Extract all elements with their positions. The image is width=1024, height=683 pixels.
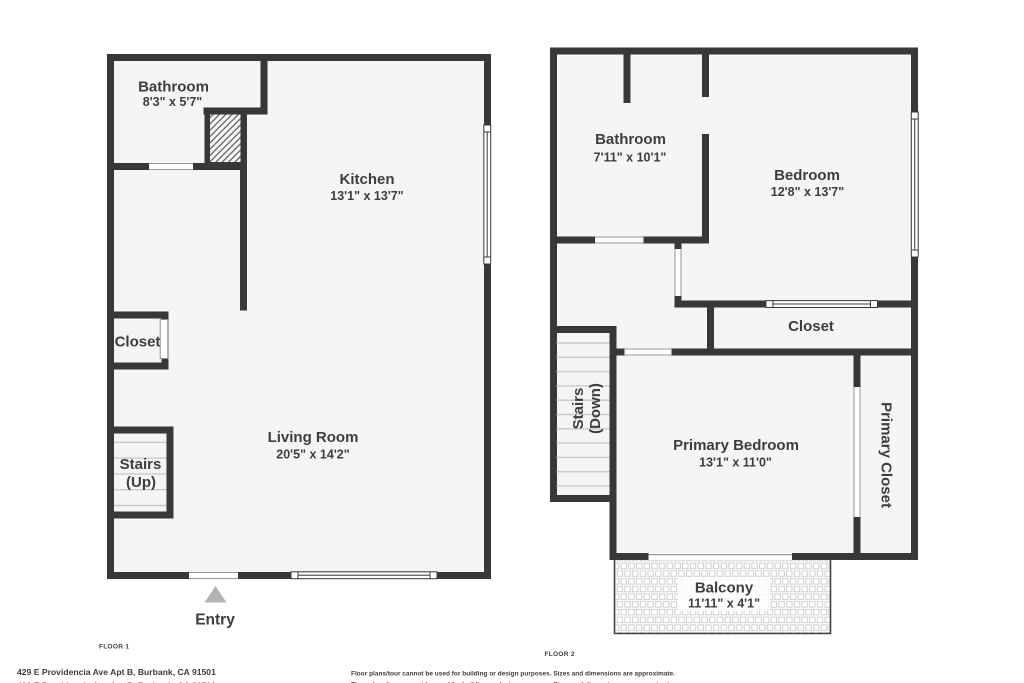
svg-text:20'5" x 14'2": 20'5" x 14'2" xyxy=(276,448,349,462)
svg-text:Entry: Entry xyxy=(195,612,235,629)
svg-text:429 E Providencia Ave Apt B, B: 429 E Providencia Ave Apt B, Burbank, CA… xyxy=(17,667,216,677)
svg-text:8'3" x 5'7": 8'3" x 5'7" xyxy=(143,95,203,109)
svg-text:Bathroom: Bathroom xyxy=(138,79,209,96)
svg-text:12'8" x 13'7": 12'8" x 13'7" xyxy=(771,185,844,199)
svg-text:11'11" x 4'1": 11'11" x 4'1" xyxy=(688,597,760,611)
svg-text:Bathroom: Bathroom xyxy=(595,131,666,148)
svg-text:FLOOR 2: FLOOR 2 xyxy=(545,651,575,658)
svg-text:Living Room: Living Room xyxy=(268,429,359,446)
svg-text:FLOOR 1: FLOOR 1 xyxy=(99,644,129,651)
svg-text:Primary Closet: Primary Closet xyxy=(878,402,895,508)
svg-text:13'1" x 13'7": 13'1" x 13'7" xyxy=(330,189,403,203)
svg-text:13'1" x 11'0": 13'1" x 11'0" xyxy=(699,456,772,470)
svg-text:Closet: Closet xyxy=(115,334,161,351)
svg-text:(Down): (Down) xyxy=(587,383,604,434)
svg-text:Bedroom: Bedroom xyxy=(774,167,840,184)
svg-text:Floor plans/tour cannot be use: Floor plans/tour cannot be used for buil… xyxy=(351,671,675,678)
svg-text:Primary Bedroom: Primary Bedroom xyxy=(673,437,799,454)
svg-text:Stairs: Stairs xyxy=(120,456,162,473)
svg-text:7'11" x 10'1": 7'11" x 10'1" xyxy=(594,151,667,165)
svg-text:Closet: Closet xyxy=(788,318,834,335)
svg-text:(Up): (Up) xyxy=(126,474,156,491)
svg-text:Kitchen: Kitchen xyxy=(339,171,394,188)
svg-text:Balcony: Balcony xyxy=(695,580,754,597)
svg-text:Stairs: Stairs xyxy=(570,388,587,430)
